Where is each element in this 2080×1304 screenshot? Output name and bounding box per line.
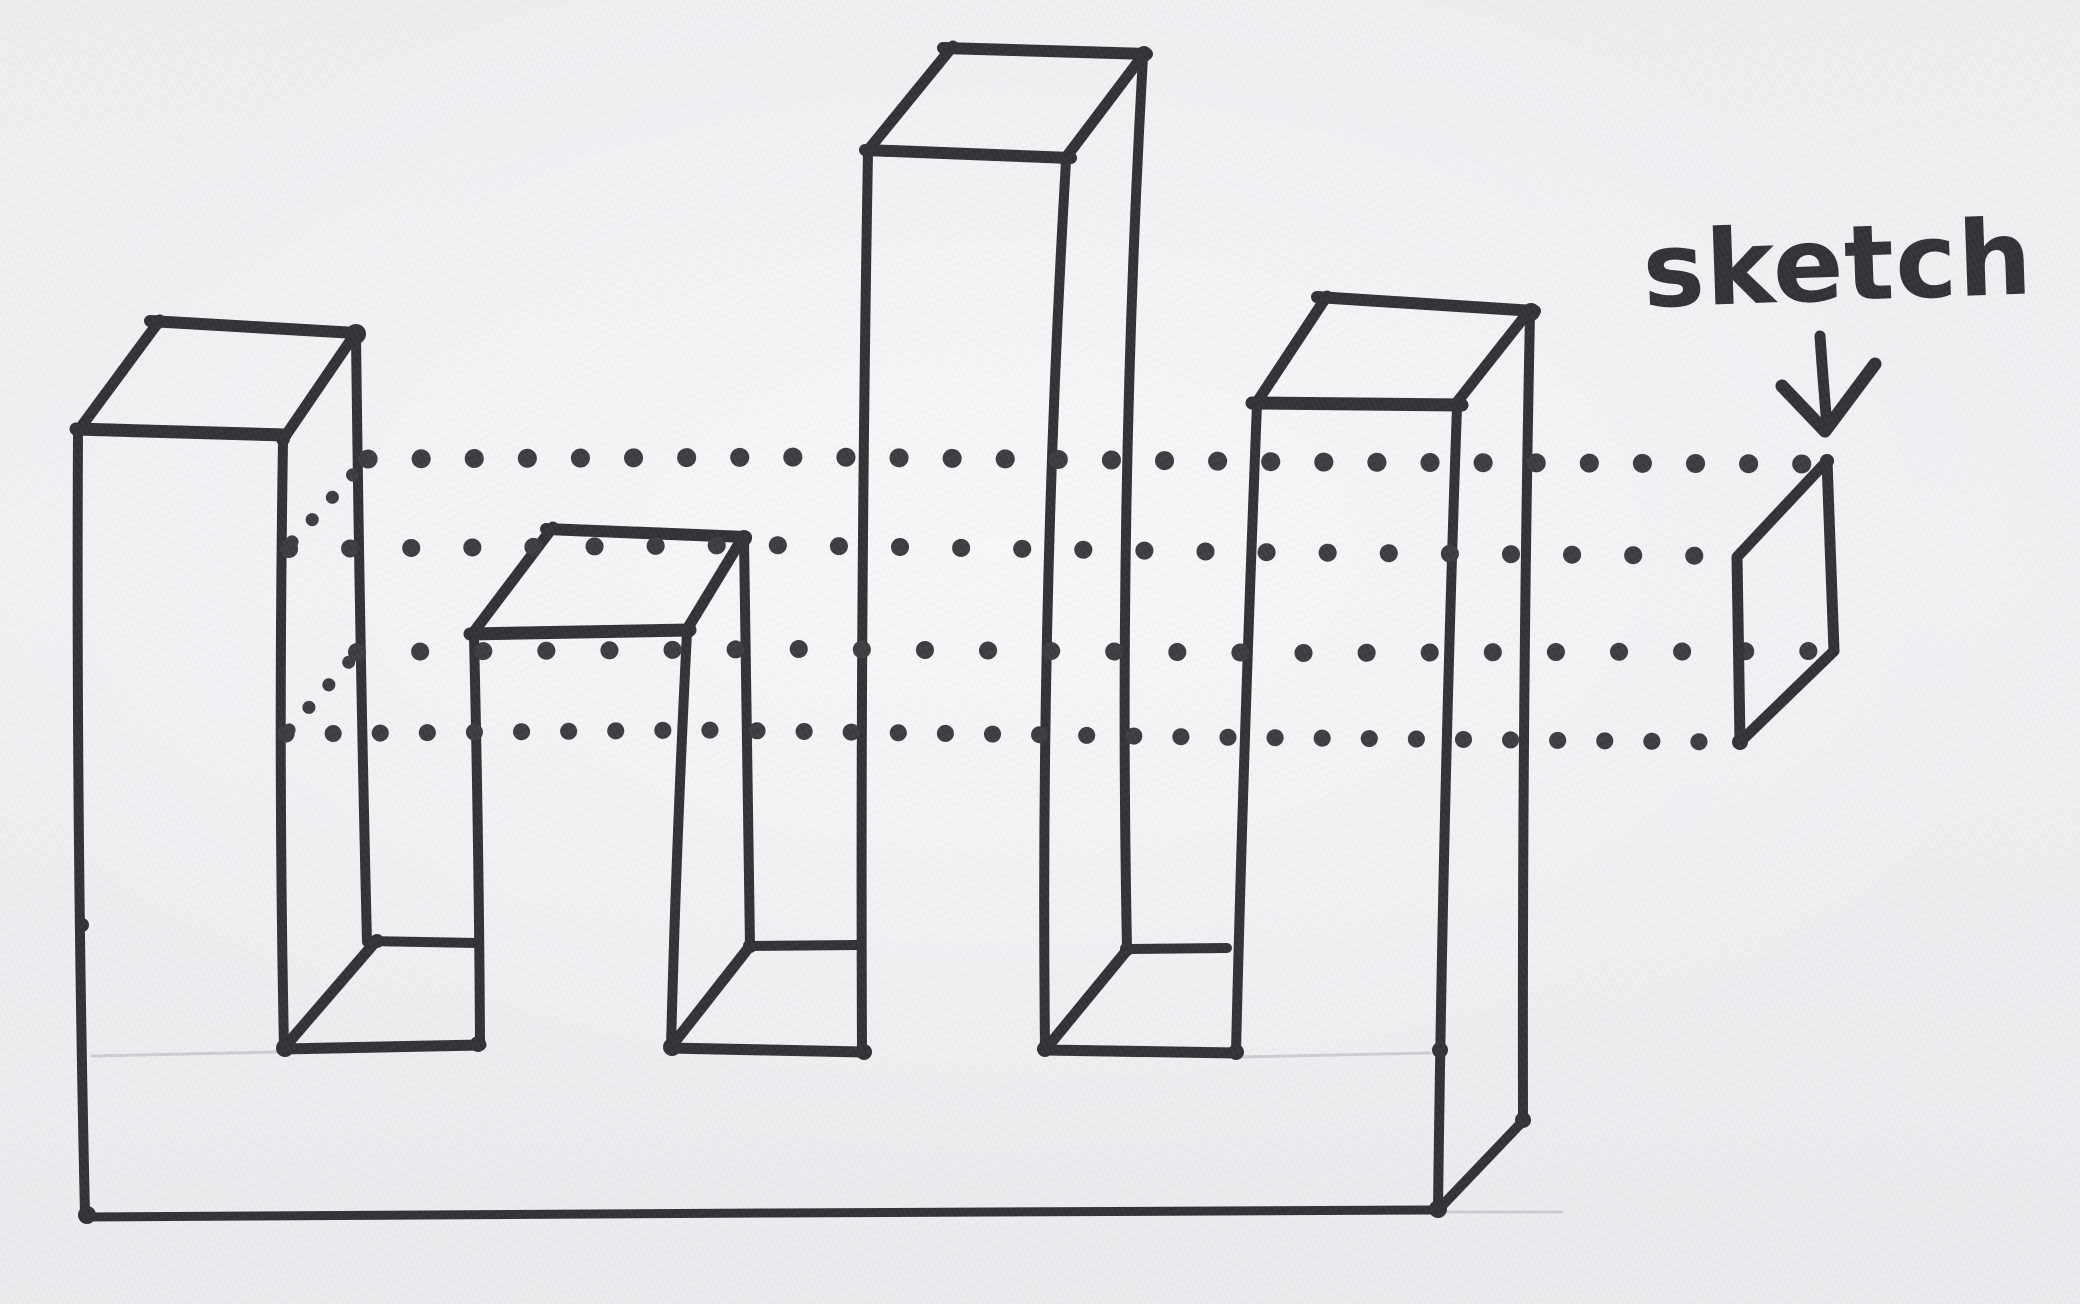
tower-2-top-back-edge [546,529,746,537]
gap-floor-2 [669,945,863,1052]
tower-1-top-front-edge [76,429,285,435]
tower-2-back-right-edge [744,539,750,946]
gap-3-front-bottom-edge [1044,1050,1236,1053]
ink-blob [75,918,89,932]
hand-drawn-extrusion-figure: sketch [0,0,2080,1304]
cross-section-profile [1732,454,1834,750]
tower-1-top-back-edge [150,321,356,333]
gap-floor-3 [1044,948,1236,1053]
gap-1-back-bottom-edge [369,941,477,943]
ink-blob [151,315,165,329]
dotted-profile-bottom-edge-on-tower-1 [289,654,356,730]
ink-blob [1059,152,1073,166]
pencil-guide-line [1240,1053,1430,1057]
pencil-guides [92,1052,1562,1212]
ink-blob [736,530,752,546]
base-outline [86,1121,1523,1217]
tower-2 [470,527,750,1047]
ink-blob [276,432,290,446]
tower-2-front-left-edge [474,636,480,1044]
tower-3-back-right-edge [1125,57,1143,948]
tower-3-top-right-edge [1064,54,1144,160]
tower-3-top-back-edge [943,48,1147,54]
ink-blob [370,934,384,948]
gap-3-back-bottom-edge [1127,948,1227,949]
tower-4-top-right-edge [1454,311,1529,406]
ink-blob [1120,942,1134,956]
tower-3-front-right-edge [1044,161,1066,1049]
tower-2-top-front-edge [470,630,690,634]
ink-blob [1136,46,1152,62]
extruded-object [75,46,1540,1224]
scanned-sketch-page: sketch [0,0,2080,1304]
tower-1-front-right-edge [281,441,284,1048]
tower-3-front-left-edge [862,152,868,1052]
ink-blob [470,1036,486,1052]
gap-2-left-bottom-edge [670,946,750,1048]
tower-4-top-front-edge [1252,403,1462,405]
ink-blob [856,1044,872,1060]
ink-blob [346,324,366,344]
tower-1-back-right-edge [356,336,367,942]
gap-3-left-bottom-edge [1045,949,1128,1050]
gap-floor-1 [282,940,481,1049]
pencil-guide-line [92,1052,278,1056]
tower-4-top-back-edge [1317,297,1535,311]
base-front-bottom-edge [86,1210,1437,1217]
arrow-shaft [1820,336,1827,426]
ink-blob [681,624,695,638]
ink-blob [1429,1200,1447,1218]
profile-parallelogram [1737,461,1834,742]
ink-blob [78,1206,96,1224]
ink-blob [1522,303,1540,321]
gap-2-front-bottom-edge [669,1048,863,1052]
ink-blob [1451,399,1465,413]
tower-3-top-front-edge [865,150,1071,158]
tower-3-top-left-edge [869,46,953,149]
dotted-projection-line-front-bottom [286,730,1730,742]
ink-blob [1515,1112,1531,1128]
gap-1-left-bottom-edge [283,940,377,1049]
dotted-projection-line-back-top [368,457,1816,464]
ink-blob [1432,1042,1448,1058]
arrow-down-icon [1782,336,1875,431]
tower-4-back-right-edge [1523,314,1530,1119]
tower-1-top-right-edge [284,334,355,438]
ink-blob [1732,734,1748,750]
tower-1 [76,320,367,1215]
dotted-projection-line-back-bottom [357,649,1822,653]
ink-blob [1037,1041,1053,1057]
tower-4-front-right-edge [1438,407,1457,1209]
tower-1-front-left-edge [78,432,85,1215]
ink-blob [743,939,757,953]
tower-4 [1236,296,1535,1209]
ink-blob [1820,454,1834,468]
gap-1-front-bottom-edge [282,1045,481,1049]
ink-blob [663,1038,681,1056]
tower-1-top-left-edge [78,320,160,431]
ink-blob [276,1039,294,1057]
gap-2-back-bottom-edge [749,945,857,946]
annotation: sketch [1640,196,2034,431]
ink-blob [1228,1044,1244,1060]
sketch-label: sketch [1640,196,2034,332]
tower-4-top-left-edge [1257,296,1327,402]
dotted-projection-line-front-top [289,545,1729,556]
tower-2-front-right-edge [671,632,687,1047]
base-right-bottom-edge [1438,1121,1523,1210]
tower-4-front-left-edge [1236,404,1257,1052]
